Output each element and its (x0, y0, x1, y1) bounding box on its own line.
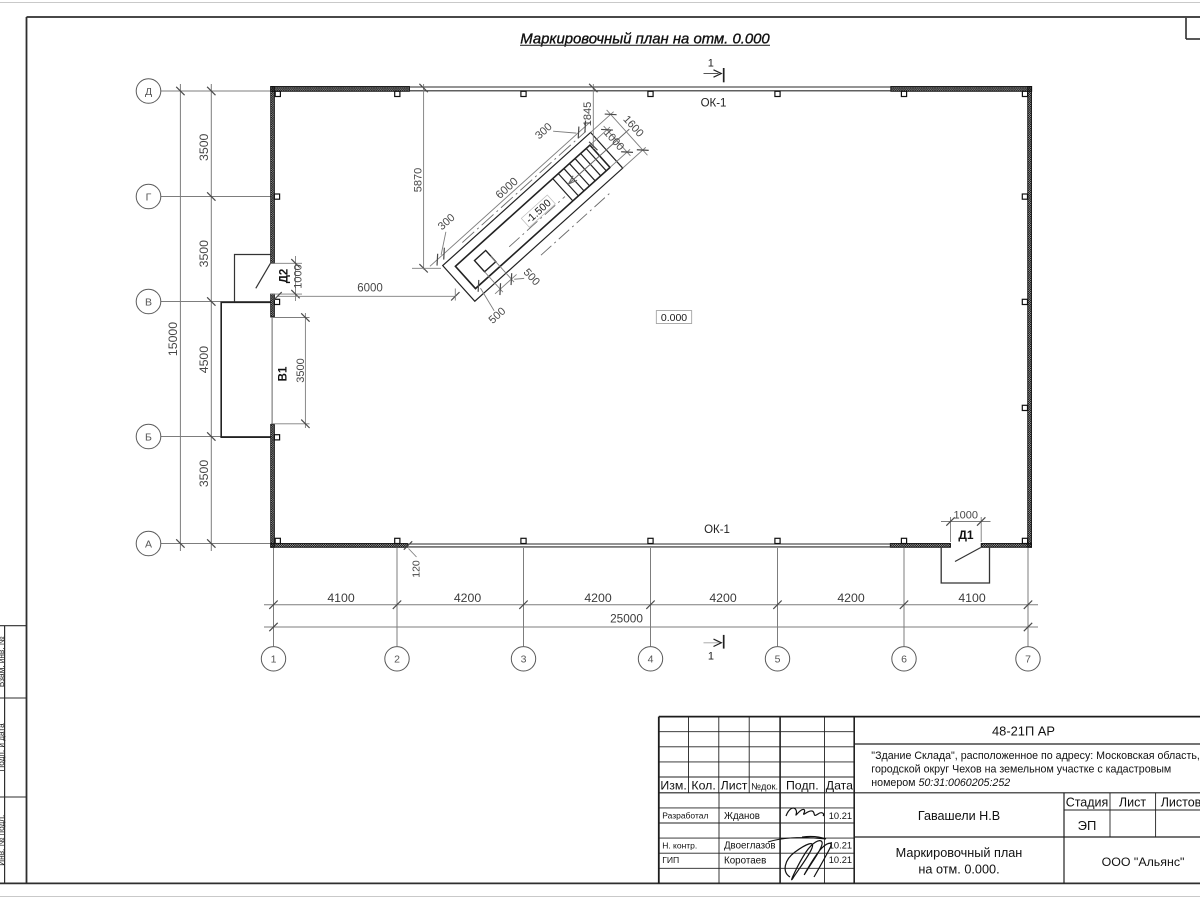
svg-text:10.21: 10.21 (829, 841, 852, 851)
svg-text:4200: 4200 (709, 591, 737, 605)
svg-text:Д1: Д1 (958, 528, 974, 542)
svg-text:Д2: Д2 (279, 269, 291, 284)
svg-text:на отм. 0.000.: на отм. 0.000. (918, 863, 999, 877)
svg-text:5870: 5870 (412, 168, 424, 192)
svg-text:В1: В1 (278, 366, 290, 381)
svg-text:4200: 4200 (584, 591, 612, 605)
svg-text:№док.: №док. (751, 781, 778, 791)
svg-text:6000: 6000 (357, 283, 383, 295)
svg-text:1000: 1000 (293, 264, 305, 288)
svg-text:Стадия: Стадия (1066, 796, 1109, 810)
svg-text:1: 1 (708, 651, 714, 663)
svg-text:4100: 4100 (327, 591, 355, 605)
svg-text:В: В (145, 296, 152, 308)
svg-text:Инв. № подл.: Инв. № подл. (0, 815, 6, 866)
svg-text:15000: 15000 (166, 322, 180, 356)
svg-text:500: 500 (521, 266, 542, 288)
svg-text:Д: Д (145, 86, 152, 98)
svg-text:4200: 4200 (454, 591, 482, 605)
svg-text:10.21: 10.21 (829, 811, 852, 821)
svg-text:"Здание Склада", расположенное: "Здание Склада", расположенное по адресу… (871, 750, 1200, 762)
svg-text:25000: 25000 (610, 612, 643, 626)
svg-text:Дата: Дата (826, 778, 853, 792)
svg-text:300: 300 (436, 212, 458, 233)
svg-text:5: 5 (775, 654, 781, 666)
svg-text:3500: 3500 (197, 240, 211, 268)
svg-text:Двоеглазов: Двоеглазов (724, 841, 776, 852)
svg-text:300: 300 (533, 121, 555, 142)
svg-text:4100: 4100 (958, 591, 986, 605)
svg-text:Жданов: Жданов (724, 811, 760, 822)
svg-text:500: 500 (487, 305, 509, 326)
svg-text:0.000: 0.000 (661, 312, 687, 324)
svg-text:3500: 3500 (197, 460, 211, 488)
svg-text:1000: 1000 (954, 510, 978, 522)
svg-text:7: 7 (1025, 654, 1031, 666)
svg-text:Коротаев: Коротаев (724, 855, 766, 866)
svg-text:Н. контр.: Н. контр. (662, 840, 697, 850)
svg-text:А: А (145, 538, 152, 550)
svg-text:4500: 4500 (197, 346, 211, 374)
svg-text:Взам. инв. №: Взам. инв. № (0, 636, 6, 687)
svg-text:1845: 1845 (582, 102, 594, 126)
svg-text:городской округ Чехов на земел: городской округ Чехов на земельном участ… (871, 764, 1171, 776)
svg-text:Гавашели Н.В: Гавашели Н.В (918, 809, 1000, 823)
svg-text:ЭП: ЭП (1078, 818, 1097, 833)
svg-text:ОК-1: ОК-1 (701, 98, 727, 110)
svg-text:3500: 3500 (197, 133, 211, 161)
svg-text:1600: 1600 (620, 113, 645, 139)
svg-text:ГИП: ГИП (662, 855, 679, 865)
svg-text:Лист: Лист (1119, 796, 1146, 810)
svg-text:Лист: Лист (721, 778, 748, 792)
svg-text:120: 120 (411, 560, 423, 578)
svg-text:4: 4 (648, 654, 654, 666)
svg-text:Изм.: Изм. (660, 778, 686, 792)
svg-text:номером 50:31:0060205:252: номером 50:31:0060205:252 (871, 777, 1010, 789)
svg-text:Маркировочный план: Маркировочный план (896, 846, 1023, 860)
svg-text:Б: Б (145, 431, 152, 443)
svg-text:Г: Г (146, 191, 152, 203)
svg-text:1: 1 (708, 57, 714, 69)
svg-text:48-21П АР: 48-21П АР (992, 724, 1055, 739)
svg-text:6: 6 (901, 654, 907, 666)
svg-text:10.21: 10.21 (829, 855, 852, 865)
svg-text:2: 2 (394, 654, 400, 666)
svg-text:ООО "Альянс": ООО "Альянс" (1102, 855, 1185, 869)
svg-text:3: 3 (521, 654, 527, 666)
svg-text:4200: 4200 (837, 591, 865, 605)
svg-text:Разработал: Разработал (662, 810, 708, 820)
svg-text:3500: 3500 (295, 358, 307, 382)
svg-text:Подп. и дата: Подп. и дата (0, 723, 6, 772)
svg-text:Подп.: Подп. (786, 778, 819, 792)
svg-text:ОК-1: ОК-1 (704, 524, 730, 536)
svg-text:1: 1 (271, 654, 277, 666)
svg-text:Кол.: Кол. (691, 778, 715, 792)
svg-text:Листов: Листов (1161, 796, 1200, 810)
